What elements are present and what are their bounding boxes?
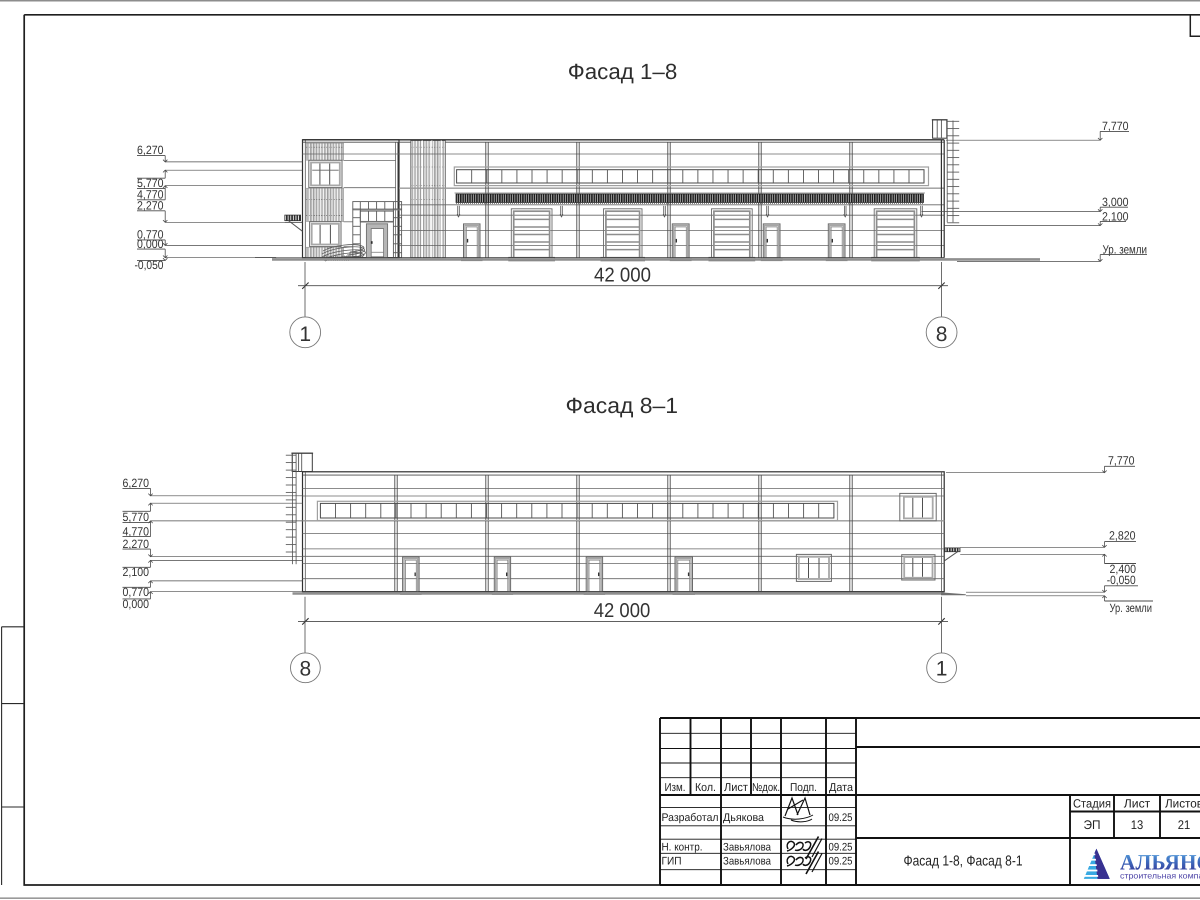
svg-text:Ур. земли: Ур. земли xyxy=(1110,601,1153,615)
svg-text:Листов: Листов xyxy=(1165,796,1200,810)
svg-text:Фасад 1–8: Фасад 1–8 xyxy=(568,59,678,84)
svg-text:Дьякова: Дьякова xyxy=(723,812,765,824)
svg-text:42 000: 42 000 xyxy=(594,600,651,622)
svg-text:Разработал: Разработал xyxy=(662,812,719,824)
svg-text:6,270: 6,270 xyxy=(123,476,150,490)
svg-text:42 000: 42 000 xyxy=(594,264,651,286)
svg-text:ЭП: ЭП xyxy=(1084,818,1101,832)
svg-text:8: 8 xyxy=(300,658,312,681)
svg-text:21: 21 xyxy=(1178,818,1191,832)
svg-text:6,270: 6,270 xyxy=(137,143,164,157)
svg-text:8: 8 xyxy=(936,323,948,346)
svg-text:Фасад 1-8, Фасад 8-1: Фасад 1-8, Фасад 8-1 xyxy=(904,854,1023,870)
svg-text:Лист: Лист xyxy=(1124,796,1151,810)
svg-text:Завьялова: Завьялова xyxy=(723,856,772,868)
svg-text:Стадия: Стадия xyxy=(1073,796,1111,810)
svg-text:Лист: Лист xyxy=(724,782,749,794)
svg-text:2,820: 2,820 xyxy=(1109,529,1136,543)
svg-text:ГИП: ГИП xyxy=(662,856,682,868)
svg-text:1: 1 xyxy=(936,658,948,681)
svg-text:5,770: 5,770 xyxy=(123,510,150,524)
svg-text:Кол.: Кол. xyxy=(695,782,716,794)
svg-text:Н. контр.: Н. контр. xyxy=(662,841,703,853)
svg-text:строительная компания: строительная компания xyxy=(1120,871,1200,880)
svg-text:Изм.: Изм. xyxy=(665,782,686,794)
svg-text:Дата: Дата xyxy=(829,782,854,794)
svg-text:Фасад 8–1: Фасад 8–1 xyxy=(566,393,679,418)
svg-text:-0,050: -0,050 xyxy=(1107,573,1136,587)
svg-text:09.25: 09.25 xyxy=(829,856,853,868)
svg-text:1: 1 xyxy=(299,323,311,346)
svg-text:Завьялова: Завьялова xyxy=(723,841,772,853)
svg-text:09.25: 09.25 xyxy=(829,812,853,824)
svg-text:№док.: №док. xyxy=(752,782,780,794)
svg-text:Подп.: Подп. xyxy=(790,782,817,794)
svg-text:2,270: 2,270 xyxy=(137,198,164,212)
svg-text:13: 13 xyxy=(1131,818,1144,832)
svg-text:09.25: 09.25 xyxy=(829,841,853,853)
svg-text:7,770: 7,770 xyxy=(1108,453,1135,467)
